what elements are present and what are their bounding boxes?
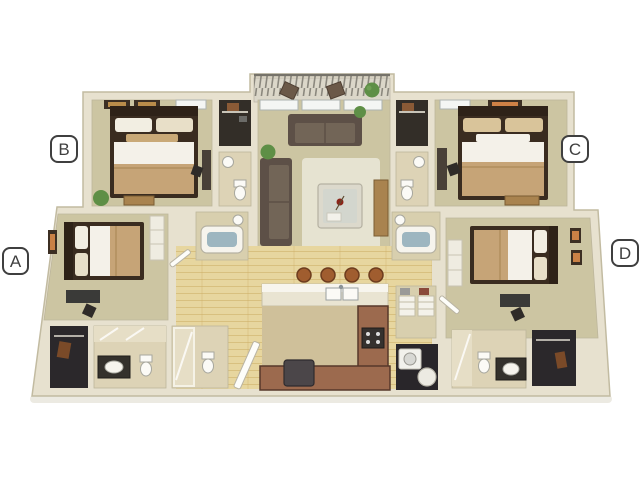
bed-b-pillow <box>115 118 152 132</box>
bathroom-a1-toilet <box>140 355 152 376</box>
pantry <box>396 286 436 338</box>
bedroom-b-plant <box>93 190 109 206</box>
floorplan-image: A B C D <box>0 0 640 480</box>
living-room-window <box>260 100 298 110</box>
living-room-plant <box>354 106 366 118</box>
kitchen-floor <box>262 306 358 366</box>
bar-stool <box>369 268 383 282</box>
bathroom-a-sink <box>233 215 243 225</box>
bathroom-d2-sink <box>503 363 519 375</box>
bed-b-headboard <box>110 106 198 116</box>
bar-stool <box>297 268 311 282</box>
closet-d <box>532 330 576 386</box>
bedroom-d-artwork-inner <box>572 231 579 240</box>
bed-b <box>110 106 198 198</box>
closet-b-box <box>239 116 247 122</box>
bathroom-a1-shower <box>94 326 166 342</box>
pantry-drawers <box>418 296 434 316</box>
bedroom-d-artwork-inner <box>573 253 580 262</box>
bed-c <box>458 106 548 200</box>
bed-c-headboard <box>458 106 548 116</box>
bedroom-d <box>446 218 598 338</box>
bedroom-b <box>92 100 212 206</box>
living-room-window <box>302 100 340 110</box>
bedroom-d-closet-shelves <box>448 240 462 286</box>
bed-a-pillow <box>75 253 88 276</box>
bed-d <box>470 226 558 284</box>
bathroom-b <box>219 152 251 206</box>
pantry-item <box>400 288 410 295</box>
bed-d-headboard <box>549 226 558 284</box>
balcony-plant <box>365 83 380 98</box>
water-heater <box>418 368 436 386</box>
bathroom-b-sink <box>223 157 234 168</box>
balcony-plant-leaf <box>367 86 372 91</box>
balcony <box>254 74 390 102</box>
bathroom-d2-toilet <box>478 352 490 373</box>
breakfast-bar <box>262 284 388 306</box>
bed-a-pillow <box>75 226 88 249</box>
bathroom-a-tub-room <box>196 212 248 260</box>
laundry-room <box>396 344 438 390</box>
bedroom-a-artwork-inner <box>50 234 55 250</box>
living-room <box>258 100 390 270</box>
bed-b-pillow <box>156 118 193 132</box>
refrigerator <box>284 360 314 386</box>
floorplan-screenshot: A B C D <box>0 0 640 480</box>
bathroom-a1-sink <box>105 361 123 373</box>
bed-a <box>64 222 144 280</box>
pantry-drawers <box>399 296 415 316</box>
sofa-top <box>288 114 362 146</box>
bathroom-a2-toilet <box>202 352 214 373</box>
bed-d-pillow <box>534 257 547 280</box>
bedroom-a-desk <box>66 290 100 303</box>
bathroom-b-toilet <box>234 180 246 200</box>
pantry-item <box>419 288 429 295</box>
living-room-plant <box>261 145 276 160</box>
bathroom-c <box>396 152 428 206</box>
bar-stool <box>345 268 359 282</box>
bathroom-a1 <box>94 326 166 388</box>
bathroom-d-sink <box>395 215 405 225</box>
stove <box>362 328 384 348</box>
coffee-table <box>318 184 362 228</box>
bed-c-pillow <box>463 118 501 132</box>
bed-d-sheet <box>508 230 532 280</box>
bedroom-c-desk <box>437 148 447 190</box>
bathroom-d-tub-room <box>392 212 440 260</box>
bed-c-accent-pillow <box>476 134 530 142</box>
bed-a-blanket <box>110 226 140 276</box>
bathtub-d-water <box>402 232 430 247</box>
unit-label-c: C <box>562 136 588 162</box>
closet-b <box>219 100 251 146</box>
bathroom-c-sink <box>414 157 425 168</box>
bedroom-b-desk <box>202 150 211 190</box>
sofa-left <box>260 158 292 246</box>
bedroom-b-dresser <box>124 196 154 205</box>
bathroom-d2 <box>452 330 526 388</box>
closet-b-box <box>227 103 239 111</box>
kitchen-counter-bottom <box>260 366 390 390</box>
closet-c <box>396 100 428 146</box>
media-console <box>374 180 388 236</box>
closet-d-interior <box>532 330 576 386</box>
kitchen-sink <box>343 288 358 300</box>
unit-label-c-text: C <box>569 140 581 159</box>
closet-a <box>50 326 88 388</box>
unit-label-d: D <box>612 240 638 266</box>
bathtub-a-water <box>207 232 237 247</box>
table-magazine <box>327 213 341 221</box>
bed-d-pillow <box>534 230 547 253</box>
bathroom-c-toilet <box>401 180 413 200</box>
bedroom-a <box>44 214 168 320</box>
kitchen-faucet <box>339 285 343 289</box>
unit-label-d-text: D <box>619 244 631 263</box>
bed-b-accent-pillow <box>126 134 178 142</box>
bed-d-blanket <box>474 230 508 280</box>
kitchen <box>260 268 390 390</box>
kitchen-sink <box>326 288 341 300</box>
unit-label-b: B <box>51 136 77 162</box>
bathroom-a2 <box>172 326 228 388</box>
bed-c-pillow <box>505 118 543 132</box>
bed-a-headboard <box>64 222 73 280</box>
bar-stool <box>321 268 335 282</box>
unit-label-b-text: B <box>58 140 69 159</box>
closet-c-box <box>402 103 414 111</box>
bedroom-c <box>435 100 567 206</box>
bedroom-a-closet-shelves <box>150 216 164 260</box>
unit-label-a-text: A <box>10 252 22 271</box>
bedroom-d-desk <box>500 294 530 307</box>
unit-label-a: A <box>3 248 28 274</box>
bedroom-c-dresser <box>505 196 539 205</box>
washer-door <box>404 353 416 365</box>
